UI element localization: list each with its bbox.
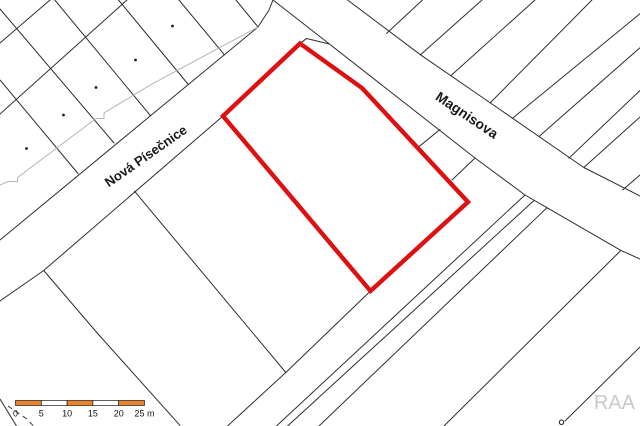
svg-text:20: 20 <box>114 409 124 419</box>
svg-text:10: 10 <box>62 409 72 419</box>
svg-text:5: 5 <box>39 409 44 419</box>
svg-text:25 m: 25 m <box>134 409 154 419</box>
svg-text:0: 0 <box>13 409 18 419</box>
svg-text:15: 15 <box>88 409 98 419</box>
svg-text:RAA: RAA <box>594 392 636 414</box>
